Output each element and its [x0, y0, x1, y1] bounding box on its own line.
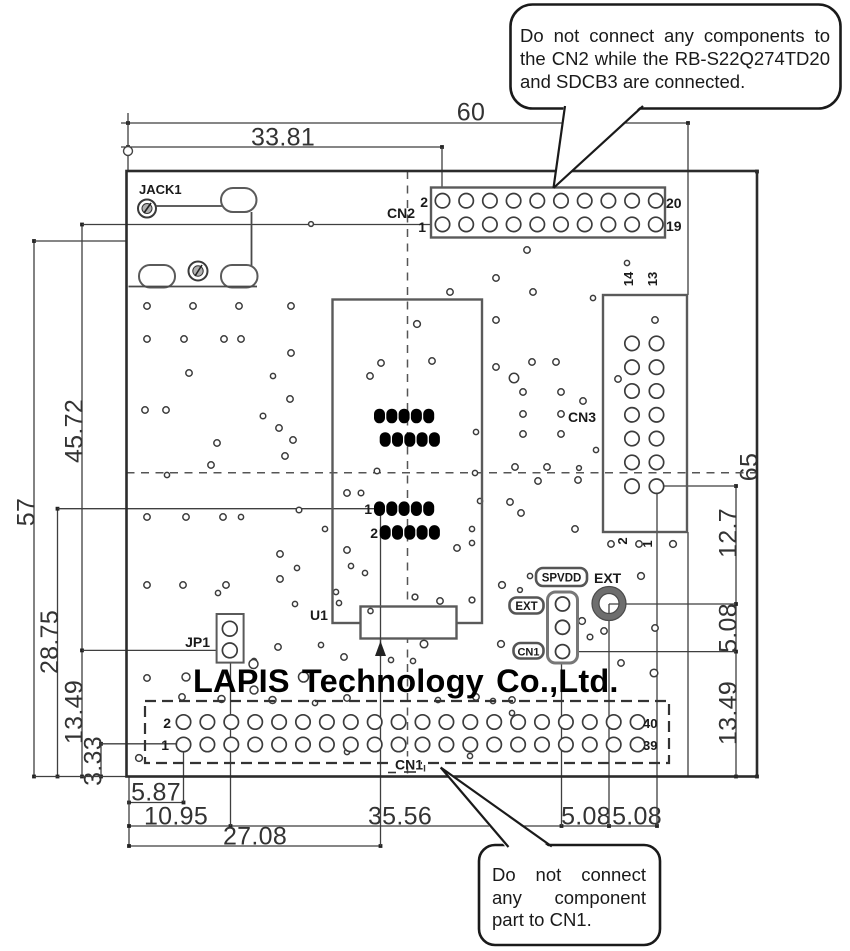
svg-text:40: 40: [643, 716, 657, 731]
svg-text:5.08: 5.08: [612, 803, 662, 831]
svg-text:LAPIS Technology Co.,Ltd.: LAPIS Technology Co.,Ltd.: [193, 663, 619, 699]
svg-text:2: 2: [615, 537, 630, 544]
svg-text:1: 1: [364, 501, 372, 517]
svg-text:35.56: 35.56: [368, 803, 432, 831]
svg-text:20: 20: [666, 195, 682, 211]
svg-text:2: 2: [163, 715, 171, 731]
svg-text:EXT: EXT: [594, 570, 622, 586]
svg-text:19: 19: [666, 218, 682, 234]
svg-text:1: 1: [640, 540, 655, 547]
svg-text:13.49: 13.49: [715, 681, 743, 745]
svg-text:JACK1: JACK1: [139, 182, 182, 197]
svg-text:12.7: 12.7: [715, 508, 743, 558]
svg-text:1: 1: [418, 219, 426, 235]
svg-text:60: 60: [457, 99, 485, 127]
svg-text:27.08: 27.08: [223, 823, 287, 851]
svg-text:U1: U1: [310, 607, 328, 623]
svg-text:CN1: CN1: [395, 757, 423, 773]
svg-text:39: 39: [643, 738, 657, 753]
svg-text:28.75: 28.75: [36, 610, 64, 674]
svg-text:CN1: CN1: [517, 647, 539, 659]
svg-text:5.08: 5.08: [715, 603, 743, 653]
svg-text:45.72: 45.72: [61, 399, 89, 463]
svg-text:33.81: 33.81: [251, 124, 315, 152]
svg-text:2: 2: [370, 525, 378, 541]
svg-text:2: 2: [420, 194, 428, 210]
svg-text:13.49: 13.49: [61, 680, 89, 744]
svg-text:JP1: JP1: [185, 634, 210, 650]
svg-text:13: 13: [645, 272, 660, 286]
svg-text:5.08: 5.08: [561, 803, 611, 831]
svg-text:65: 65: [736, 453, 764, 481]
svg-text:57: 57: [13, 498, 41, 526]
svg-text:EXT: EXT: [515, 601, 537, 613]
svg-text:CN3: CN3: [568, 409, 596, 425]
svg-text:1: 1: [161, 737, 169, 753]
svg-text:CN2: CN2: [387, 205, 415, 221]
svg-text:14: 14: [621, 271, 636, 286]
svg-text:SPVDD: SPVDD: [542, 573, 582, 585]
svg-text:10.95: 10.95: [144, 803, 208, 831]
